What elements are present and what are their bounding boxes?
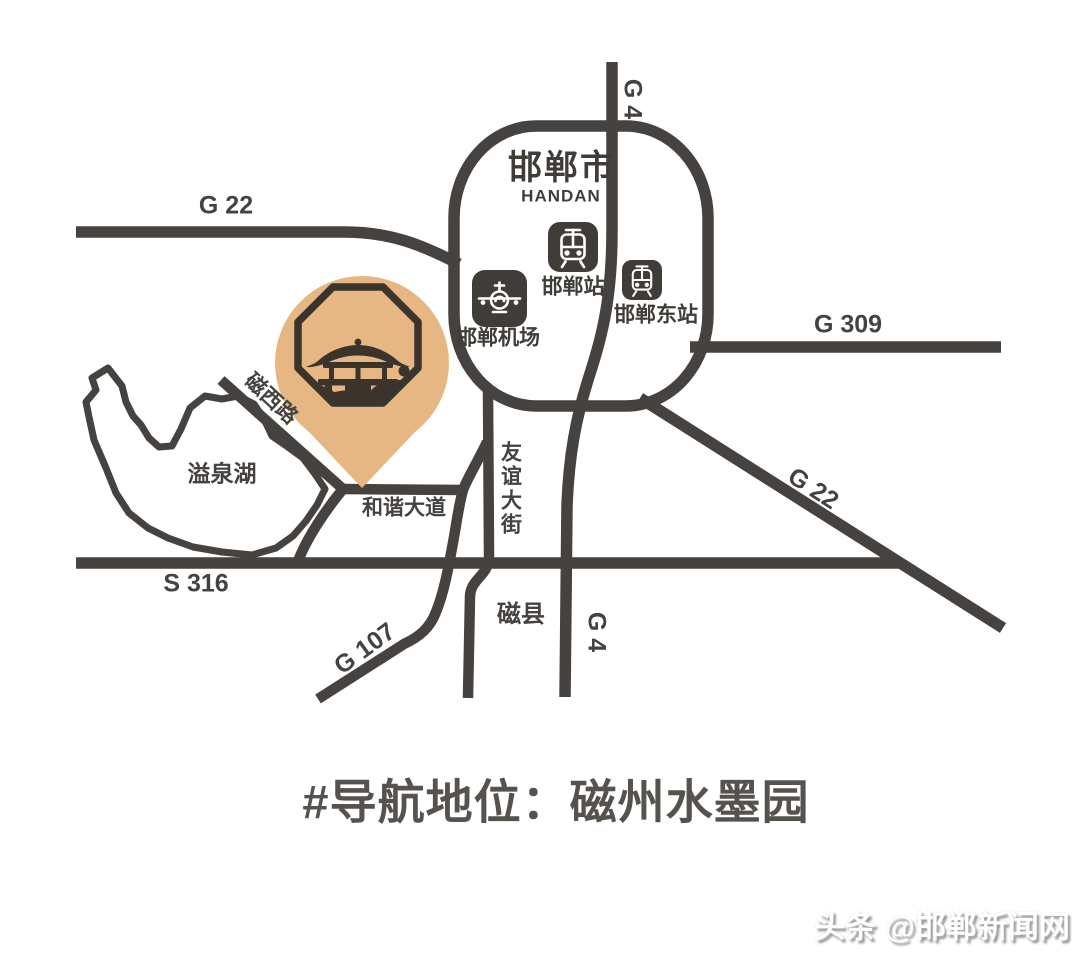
lake-label: 溢泉湖 (188, 463, 257, 486)
airport-icon (472, 270, 527, 327)
moon-dot (399, 366, 410, 377)
road-g22-northwest (76, 232, 459, 264)
county-label: 磁县 (497, 603, 545, 627)
road-hexie-avenue (343, 489, 464, 490)
road-g22-southeast (640, 398, 1003, 628)
road-youyi-street (468, 390, 489, 698)
city-name-en-label: HANDAN (521, 188, 601, 205)
city-name-label: 邯郸市 (508, 151, 616, 185)
map-canvas: 邯郸市 HANDAN 邯郸站 邯郸东站 邯郸机场 G 22 G 4 G 309 … (0, 0, 1080, 963)
road-label-g309: G 309 (814, 313, 882, 338)
road-label-youyi-street: 友谊大街 (500, 441, 521, 537)
train-station-east-icon (622, 260, 662, 300)
road-label-g4-top: G 4 (620, 79, 645, 119)
handan-east-station-label: 邯郸东站 (614, 305, 698, 326)
handan-station-label: 邯郸站 (542, 277, 605, 298)
watermark-text: 头条 @邯郸新闻网 (814, 902, 1070, 947)
navigation-caption: #导航地位：磁州水墨园 (302, 764, 809, 833)
train-station-icon (548, 222, 598, 272)
road-label-hexie-avenue: 和谐大道 (362, 498, 446, 519)
handan-airport-label: 邯郸机场 (456, 328, 540, 349)
road-label-s316: S 316 (163, 572, 228, 597)
road-label-g4-bottom: G 4 (584, 612, 609, 652)
road-label-g22-northwest: G 22 (199, 194, 253, 219)
